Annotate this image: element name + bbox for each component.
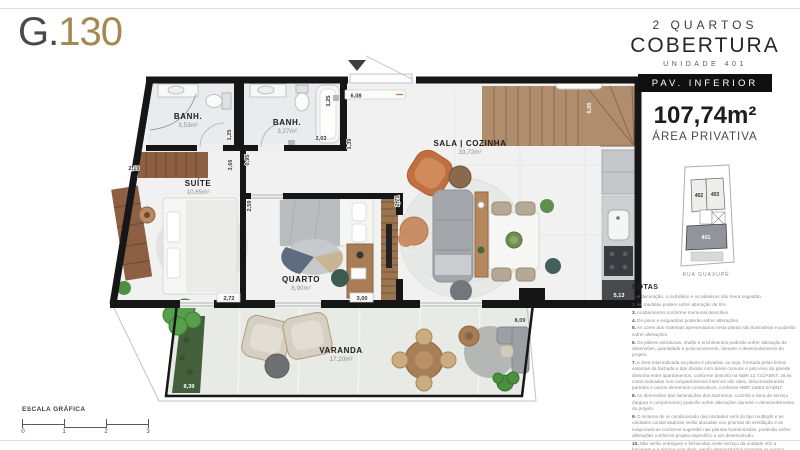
dim-2-03: 2,03 — [316, 136, 327, 142]
room-banh1-name: BANH. — [174, 112, 202, 121]
scale-tick-3: 3 — [146, 429, 149, 435]
street-label: RUA GUAXUPÉ — [640, 272, 772, 278]
panel-title-line2: COBERTURA — [612, 34, 798, 58]
note-item: 2.As medidas podem sofrer alteração de 5… — [632, 302, 796, 308]
room-sala-area: 33,72m² — [458, 149, 481, 156]
coffee-table — [265, 354, 289, 378]
dim-2-72: 2,72 — [224, 296, 235, 302]
note-item: 5.As cores dos materiais apresentados ne… — [632, 325, 796, 338]
dim-5-13: 5,13 — [614, 293, 625, 299]
room-quarto-area: 8,90m² — [291, 285, 311, 292]
dim-8-39: 8,39 — [184, 384, 195, 390]
room-banh2-name: BANH. — [273, 118, 301, 127]
note-item: 10.Não serão entregues e fornecidas nest… — [632, 441, 796, 450]
graphic-scale: ESCALA GRÁFICA 0 1 2 3 — [22, 406, 162, 437]
dining-chair — [492, 268, 511, 281]
room-varanda-name: VARANDA — [319, 346, 363, 355]
dim-1-25-a: 1,25 — [227, 130, 233, 141]
panel-title-line1: 2 QUARTOS — [612, 18, 798, 32]
scale-label: ESCALA GRÁFICA — [22, 406, 162, 413]
dining-chair — [516, 268, 535, 281]
notes-section: NOTAS 1.A decoração, o mobiliário e os a… — [632, 284, 796, 450]
panel-unit-subtitle: UNIDADE 401 — [612, 61, 798, 68]
dining-chair — [492, 202, 511, 215]
stove — [604, 246, 633, 276]
room-quarto-name: QUARTO — [282, 275, 320, 284]
note-item: 6.Os pilares estruturais, shafts e enchi… — [632, 340, 796, 359]
scale-tick-1: 1 — [62, 429, 65, 435]
page: G.130 — [0, 0, 800, 450]
room-sala-name: SALA | COZINHA — [433, 139, 506, 148]
note-item: 1.A decoração, o mobiliário e os adesivo… — [632, 294, 796, 300]
notes-title: NOTAS — [632, 284, 796, 291]
dim-2-71: 2,71 — [395, 196, 401, 207]
room-suite-area: 10,65m² — [186, 189, 209, 196]
room-banh1-area: 3,53m² — [178, 122, 198, 129]
plant — [540, 199, 554, 213]
kitchen-counter — [602, 150, 636, 306]
dim-1-25-b: 1,25 — [326, 96, 332, 107]
note-item: 9.O sistema de ar condicionado das unida… — [632, 414, 796, 439]
scale-tick-0: 0 — [21, 429, 24, 435]
dim-2-19: 2,19 — [129, 166, 140, 172]
private-area-label: ÁREA PRIVATIVA — [612, 131, 798, 143]
dim-6-08: 6,08 — [351, 94, 362, 100]
note-item: 7.A área total indicada na planta é priv… — [632, 360, 796, 392]
dim-1-39: 1,39 — [347, 139, 353, 150]
dim-8-09: 8,09 — [515, 318, 526, 324]
keyplan-unit-402: 402 — [695, 193, 704, 199]
note-item: 8.As dimensões das iluminações dos banhe… — [632, 393, 796, 412]
desk-chair — [331, 269, 349, 287]
dim-0-95: 0,95 — [245, 155, 251, 166]
info-panel: 2 QUARTOS COBERTURA UNIDADE 401 PAV. INF… — [612, 18, 798, 143]
private-area-value: 107,74m² — [612, 102, 798, 130]
note-item: 3.Acabamentos conforme memorial descriti… — [632, 310, 796, 316]
dining-chair — [516, 202, 535, 215]
scale-bar: 0 1 2 3 — [22, 417, 148, 437]
ottoman — [450, 280, 472, 302]
dim-3-00: 3,00 — [357, 296, 368, 302]
stool — [545, 258, 561, 274]
sink — [608, 210, 629, 240]
room-suite-name: SUÍTE — [185, 179, 212, 188]
entry-arrow-icon — [348, 60, 366, 71]
entry-door — [350, 74, 412, 83]
dim-2-59: 2,59 — [247, 201, 253, 212]
pouf — [449, 166, 471, 188]
room-banh2-area: 3,27m² — [277, 128, 297, 135]
keyplan-unit-403: 403 — [711, 192, 720, 198]
scale-tick-2: 2 — [104, 429, 107, 435]
room-varanda-area: 17,20m² — [329, 356, 352, 363]
dim-5-05: 5,05 — [587, 103, 593, 114]
key-plan: 402 403 401 — [678, 164, 738, 270]
note-item: 4.Os pisos e esquadrias poderão sofrer a… — [632, 318, 796, 324]
dim-3-66: 3,66 — [228, 160, 234, 171]
keyplan-unit-401: 401 — [701, 235, 710, 241]
floor-badge: PAV. INFERIOR — [638, 74, 772, 92]
